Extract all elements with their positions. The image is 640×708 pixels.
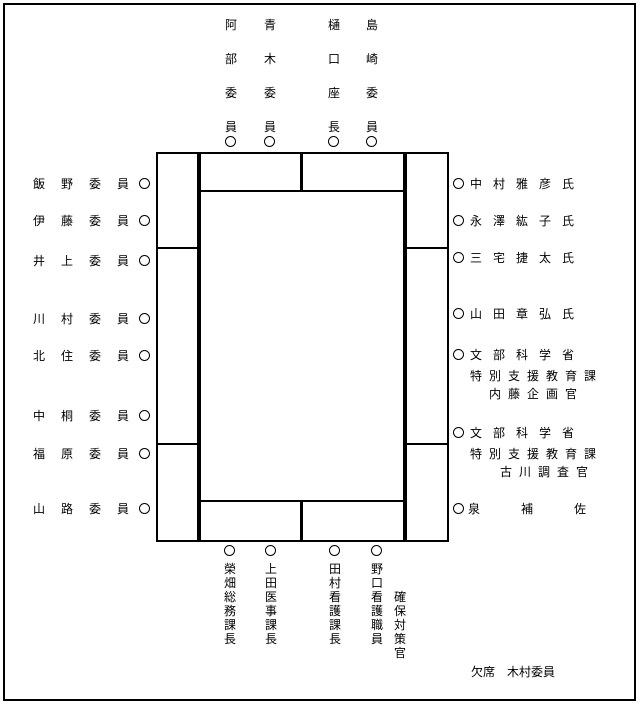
seat-circle-top-1 [225,136,236,147]
seat-label-right-6-line2: 特別支援教育課 [470,448,603,460]
seat-label-bottom-1: 榮畑総務課長 [224,563,236,645]
seat-label-bottom-4-col1: 野口看護職員 [371,563,383,645]
seat-label-top-4: 島崎委員 [366,19,378,133]
seat-label-right-3: 三宅捷太氏 [470,252,585,264]
table-right-divider-1 [407,247,449,249]
table-top-band-divider [300,152,303,192]
seat-circle-left-5 [139,350,150,361]
seat-circle-right-2 [453,215,464,226]
seat-label-right-4: 山田章弘氏 [470,308,585,320]
seat-circle-bottom-3 [329,545,340,556]
seat-label-bottom-3: 田村看護課長 [329,563,341,645]
seat-circle-left-3 [139,255,150,266]
seat-label-left-1: 飯野委員 [33,178,145,190]
seat-label-left-3: 井上委員 [33,255,145,267]
seat-label-right-6-line1: 文部科学省 [470,427,585,439]
seat-label-right-5-line3: 内藤企画官 [489,388,584,400]
seat-label-left-6: 中桐委員 [33,410,145,422]
seating-chart-page: 阿部委員 青木委員 樋口座長 島崎委員 飯野委員 伊藤委員 井上委員 川村委員 … [0,0,640,708]
seat-circle-left-6 [139,410,150,421]
seat-label-right-7: 泉補佐 [468,503,627,515]
seat-label-left-5: 北住委員 [33,350,145,362]
absent-note: 欠席 木村委員 [471,666,555,678]
seat-label-left-7: 福原委員 [33,448,145,460]
table-bottom-band-divider [300,500,303,542]
seat-label-bottom-2: 上田医事課長 [265,563,277,645]
seat-circle-left-4 [139,313,150,324]
seat-circle-right-1 [453,178,464,189]
seat-circle-right-7 [453,503,464,514]
seat-circle-top-2 [264,136,275,147]
seat-label-left-8: 山路委員 [33,503,145,515]
seat-label-top-1: 阿部委員 [225,19,237,133]
seat-circle-top-3 [328,136,339,147]
table-left-divider-2 [156,443,197,445]
seat-circle-left-7 [139,448,150,459]
seat-circle-bottom-1 [224,545,235,556]
seat-circle-top-4 [366,136,377,147]
seat-circle-right-6 [453,427,464,438]
seat-label-right-1: 中村雅彦氏 [470,178,585,190]
seat-label-left-4: 川村委員 [33,313,145,325]
seat-circle-left-8 [139,503,150,514]
seat-circle-bottom-2 [265,545,276,556]
seat-label-right-6-line3: 古川調査官 [500,466,595,478]
seat-circle-bottom-4 [371,545,382,556]
seat-circle-left-1 [139,178,150,189]
table-left-inner-line [197,152,201,542]
seat-label-left-2: 伊藤委員 [33,215,145,227]
seat-circle-left-2 [139,215,150,226]
seat-label-right-5-line1: 文部科学省 [470,349,585,361]
seat-label-top-2: 青木委員 [264,19,276,133]
seat-circle-right-3 [453,252,464,263]
seat-label-bottom-4-col2: 確保対策官 [394,591,406,659]
seat-label-top-3: 樋口座長 [328,19,340,133]
seat-label-right-5-line2: 特別支援教育課 [470,370,603,382]
seat-circle-right-4 [453,308,464,319]
table-right-inner-line [403,152,407,542]
seat-circle-right-5 [453,349,464,360]
table-left-divider-1 [156,247,197,249]
table-right-divider-2 [407,443,449,445]
seat-label-right-2: 永澤紘子氏 [470,215,585,227]
